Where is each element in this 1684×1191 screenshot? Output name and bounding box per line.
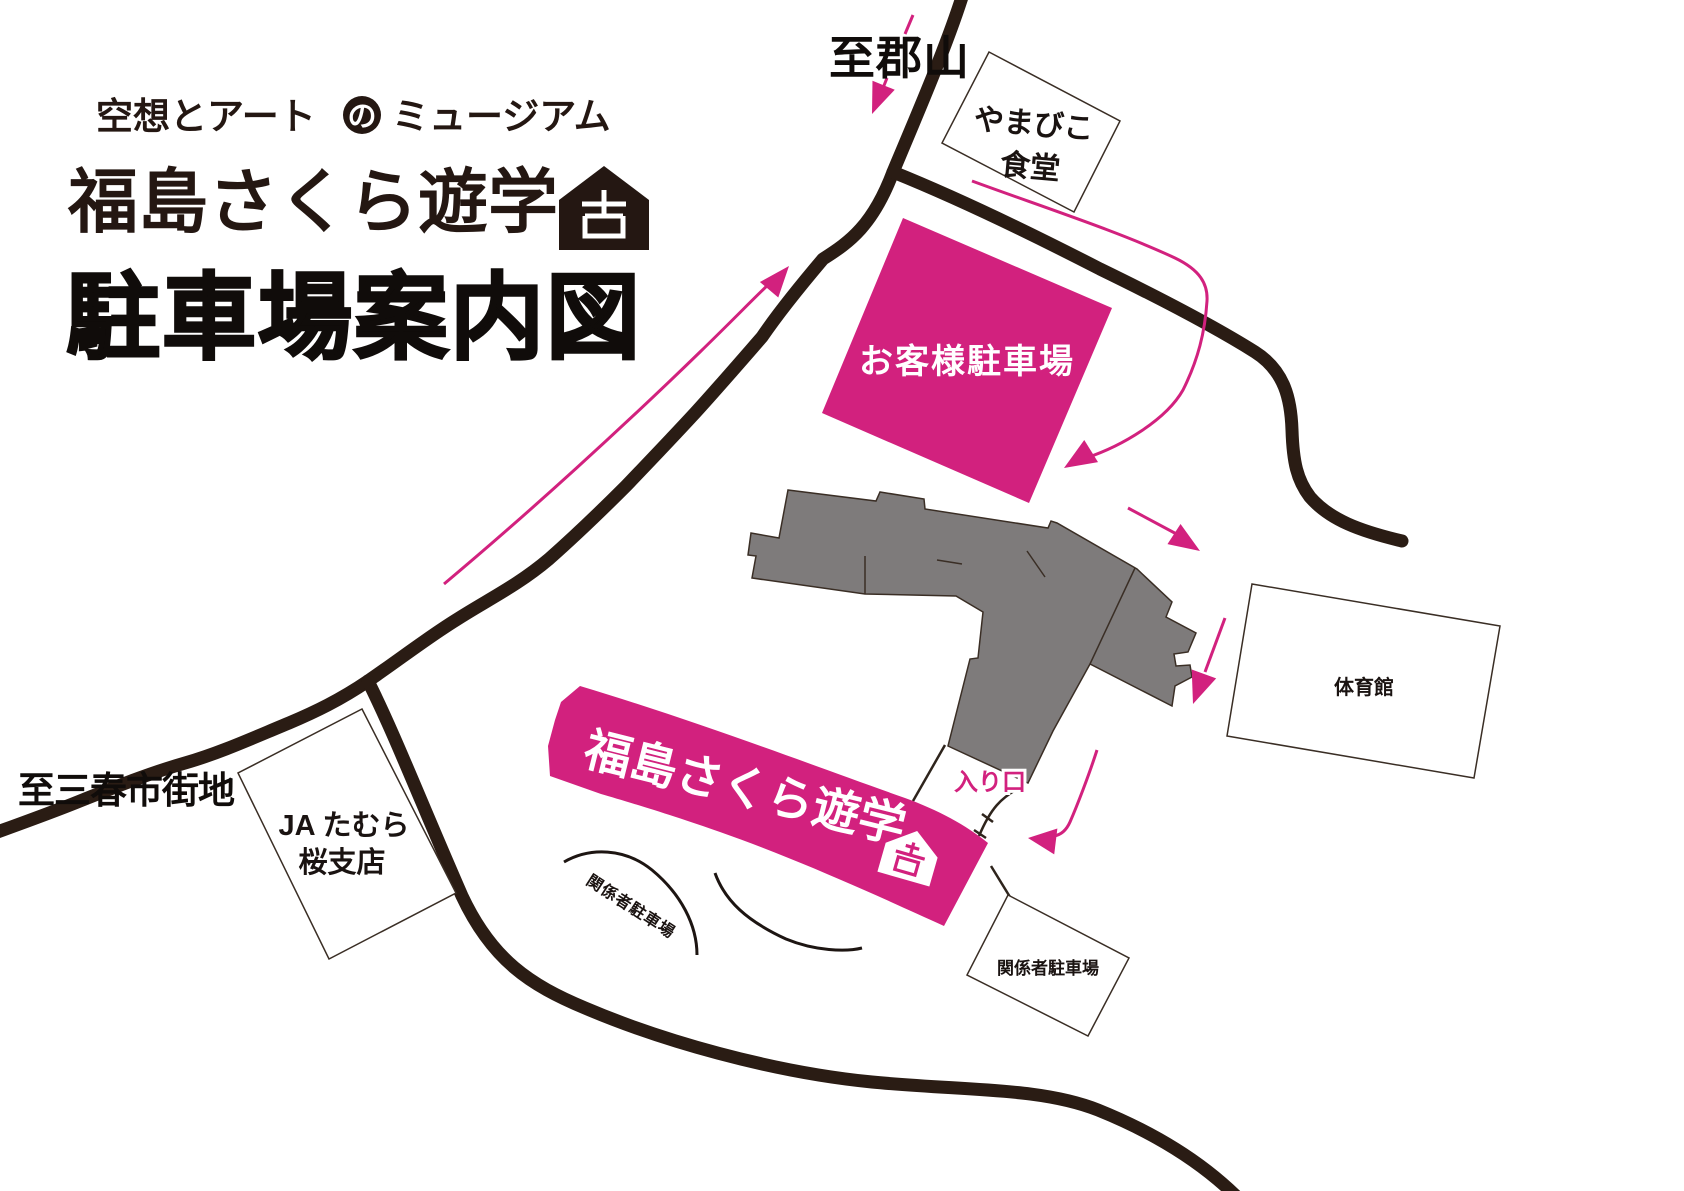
svg-text:至三春市街地: 至三春市街地: [18, 769, 235, 811]
svg-text:お客様駐車場: お客様駐車場: [859, 342, 1075, 381]
svg-text:福島さくら遊学: 福島さくら遊学: [67, 163, 558, 241]
svg-text:ミュージアム: ミュージアム: [392, 96, 611, 137]
svg-text:の: の: [347, 101, 376, 133]
svg-text:駐車場案内図: 駐車場案内図: [66, 265, 642, 370]
svg-text:桜支店: 桜支店: [298, 846, 385, 879]
svg-text:空想とアート: 空想とアート: [96, 96, 316, 137]
svg-text:関係者駐車場: 関係者駐車場: [997, 958, 1099, 978]
svg-text:JA たむら: JA たむら: [278, 810, 409, 842]
svg-text:食堂: 食堂: [999, 147, 1062, 186]
svg-text:至郡山: 至郡山: [829, 32, 970, 84]
svg-text:体育館: 体育館: [1334, 675, 1394, 699]
svg-text:入り口: 入り口: [954, 769, 1026, 796]
